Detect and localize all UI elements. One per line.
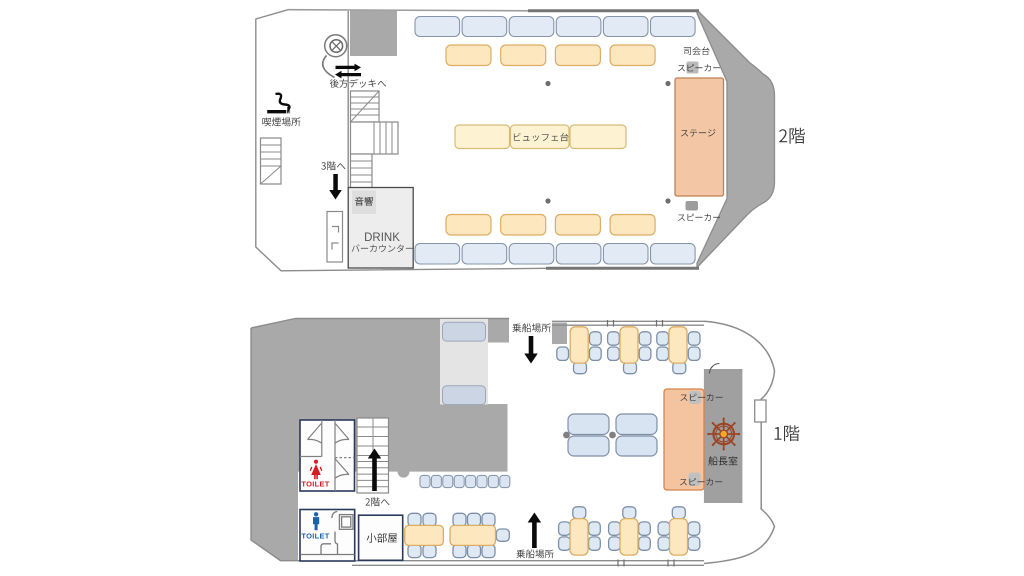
- svg-text:TOILET: TOILET: [301, 532, 329, 541]
- svg-text:TOILET: TOILET: [301, 479, 329, 488]
- svg-text:DRINK: DRINK: [364, 232, 400, 244]
